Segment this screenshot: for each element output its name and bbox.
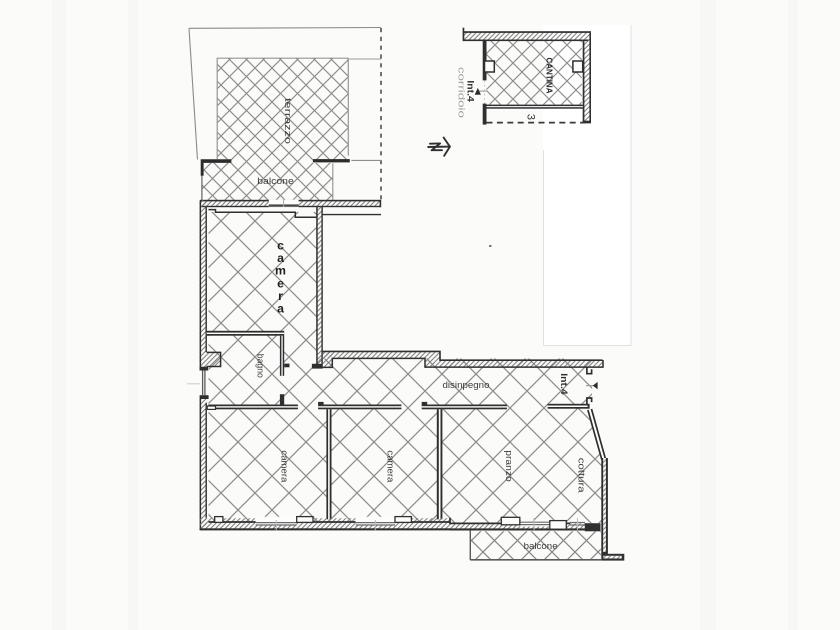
svg-text:3: 3 xyxy=(524,114,536,120)
svg-text:balcone: balcone xyxy=(257,176,294,186)
svg-text:bagno: bagno xyxy=(255,354,265,378)
svg-text:camera: camera xyxy=(279,450,289,482)
svg-text:a: a xyxy=(277,302,284,316)
svg-text:pranzo: pranzo xyxy=(504,450,514,482)
svg-text:disinpegno: disinpegno xyxy=(443,380,490,390)
svg-text:corridoio: corridoio xyxy=(455,67,466,118)
svg-text:camera: camera xyxy=(385,450,395,482)
svg-text:CANTINA: CANTINA xyxy=(545,58,555,94)
svg-text:balcone: balcone xyxy=(524,541,558,551)
svg-text:cottura: cottura xyxy=(577,458,587,493)
svg-text:Int.4: Int.4 xyxy=(559,373,569,395)
svg-text:terrazzo: terrazzo xyxy=(283,98,293,144)
